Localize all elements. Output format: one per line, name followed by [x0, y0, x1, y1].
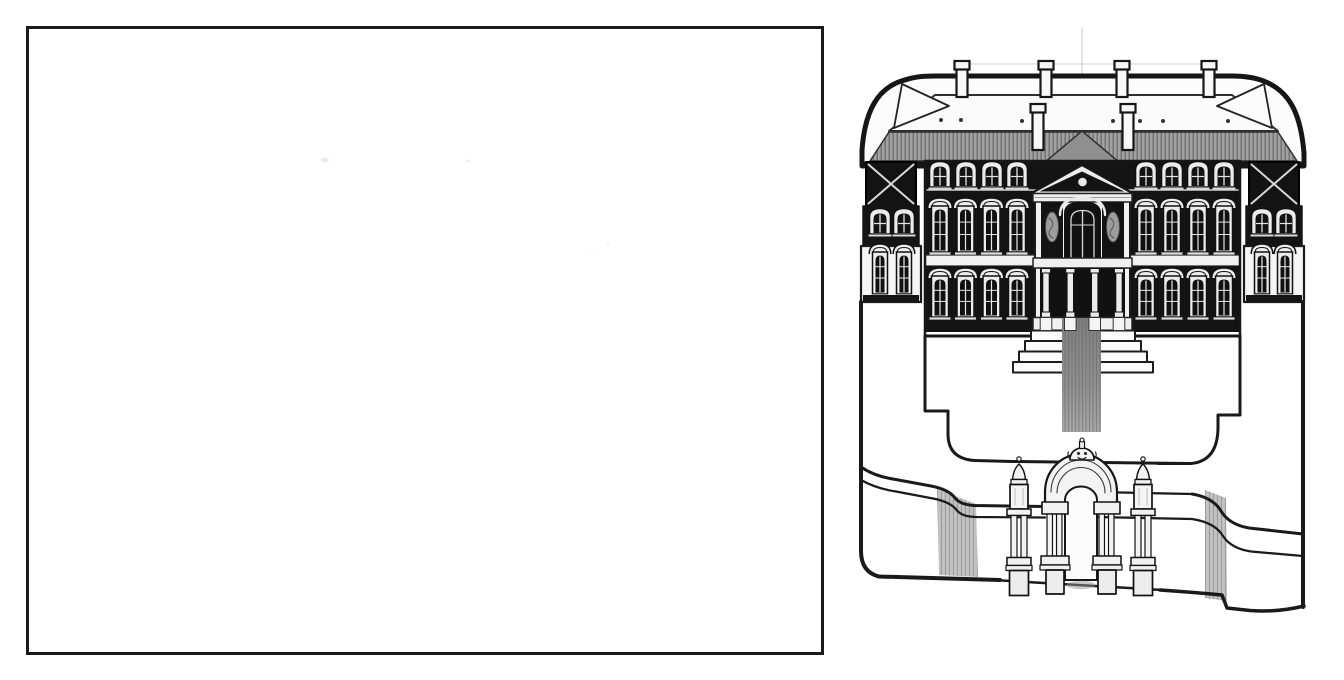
attic-dormer — [981, 162, 1004, 189]
upper-window — [1005, 198, 1029, 254]
gate-opening — [1065, 487, 1097, 581]
stair-step-1 — [1031, 331, 1135, 342]
lower-window — [1186, 268, 1210, 319]
lower-window — [953, 268, 977, 319]
gate-jamb-ogee-left — [1040, 565, 1070, 570]
upper-window — [1134, 198, 1158, 254]
lower-window — [1160, 268, 1184, 319]
attic-dormer — [955, 162, 978, 189]
blank-page-panel — [26, 26, 824, 655]
chimney-tall-3 — [1115, 61, 1130, 97]
portico-door-outline — [1071, 211, 1094, 259]
pavilion-right-attic-band — [1246, 206, 1302, 246]
upper-window — [953, 198, 977, 254]
upper-window — [928, 198, 952, 254]
loggia-pedestal — [1040, 318, 1052, 331]
pavilion-left-sill-band — [863, 295, 919, 302]
gate-pillar-outer-right — [1130, 457, 1156, 596]
niche-panel-right — [1102, 202, 1124, 258]
roof-hip-facet-left — [894, 84, 949, 128]
portico-backdrop — [1035, 195, 1130, 330]
gate-jamb-colonnette — [1109, 514, 1115, 558]
wall-bottom-mid — [1002, 581, 1162, 591]
pavilion-right-roof-diagonal — [1252, 165, 1297, 204]
roof-silhouette — [862, 76, 1304, 166]
gate-crest-dome — [1070, 448, 1094, 461]
medallion-right-figure — [1110, 218, 1114, 238]
pavilion-left-dormer — [893, 209, 916, 236]
medallion-left — [1046, 212, 1059, 242]
attic-dormer — [929, 162, 952, 189]
upper-window — [1186, 198, 1210, 254]
gate-crest-curl-right — [1094, 452, 1096, 459]
gate-crest-motif-dot — [1084, 452, 1087, 455]
gate-jamb-colonnette — [1057, 514, 1063, 558]
walkway-shaded-path — [1062, 318, 1101, 432]
pavilion-left-window — [869, 244, 891, 296]
wall-molding-upper-right — [1192, 494, 1303, 534]
pediment — [1030, 165, 1134, 194]
gate-jamb-colonnette — [1047, 514, 1053, 558]
loggia-column — [1090, 269, 1099, 318]
gate-jamb-pedestal-right — [1094, 502, 1120, 514]
medallion-left-figure — [1049, 218, 1053, 238]
pavilion-right-wall — [1244, 246, 1304, 302]
stair-step-3 — [1019, 352, 1147, 363]
gate-crest-motif-curve — [1078, 458, 1086, 460]
pavilion-right-roof-diagonal — [1252, 165, 1297, 204]
attic-band — [925, 161, 1240, 197]
loggia-opening — [1040, 268, 1125, 318]
gate-crest-curl-left — [1068, 452, 1070, 459]
gate-crest-ball — [1080, 438, 1084, 442]
upper-window — [1160, 198, 1184, 254]
gate-jamb-colonnette — [1099, 514, 1105, 558]
loggia-column — [1041, 269, 1050, 318]
niche-panel-left — [1041, 202, 1063, 258]
gate-jamb-ogee-right — [1092, 565, 1122, 570]
chimney-tall-4 — [1202, 61, 1217, 97]
facade-outline — [925, 161, 1240, 336]
wall-shade-strip-left — [937, 489, 978, 577]
medallion-right — [1107, 212, 1120, 242]
chimney-front-2 — [1121, 104, 1136, 150]
gate-pillar-outer-left — [1006, 457, 1032, 596]
stair-step-2 — [1025, 341, 1141, 352]
roof-upper-plane — [889, 95, 1278, 131]
gate-crest-knob — [1080, 442, 1085, 449]
wall-molding-lower-mid — [1097, 517, 1192, 519]
chimney-tall-2 — [1039, 61, 1054, 97]
wall-molding-lower-left — [861, 480, 1045, 518]
pavilion-right-dormer — [1251, 209, 1274, 236]
pediment-tympanum — [1040, 172, 1125, 192]
gate-jamb-plinth-right — [1093, 556, 1121, 565]
attic-dormer — [1006, 162, 1029, 189]
gate-jamb-plinth-left — [1041, 556, 1069, 565]
wall-inner-contour-left — [925, 336, 1012, 462]
stair-step-4 — [1013, 362, 1153, 373]
attic-dormer — [1213, 162, 1236, 189]
portico-entablature — [1033, 194, 1132, 203]
pavilion-left-dormer — [869, 209, 892, 236]
wall-molding-upper-mid — [1097, 492, 1192, 494]
gate-arch-band — [1045, 454, 1117, 503]
portico-arch-opening — [1064, 202, 1101, 259]
pavilion-left-wall — [861, 246, 921, 302]
lower-window — [1212, 268, 1236, 319]
loggia-column — [1114, 269, 1123, 318]
roof-snowguard-dots — [939, 118, 1230, 123]
gate-archivolt-2 — [1057, 468, 1105, 493]
gate-jamb-base-left — [1046, 570, 1064, 594]
wall-outer-edge-left — [861, 302, 1000, 580]
gate-shadow — [1067, 581, 1096, 589]
chimney-front-1 — [1031, 104, 1046, 150]
upper-window — [979, 198, 1003, 254]
pavilion-right-dormer — [1275, 209, 1298, 236]
pavilion-right-window — [1251, 244, 1273, 296]
stylobate-band — [1033, 318, 1132, 331]
pavilion-right-pyramid-roof — [1249, 162, 1299, 206]
lower-window-band — [925, 266, 1240, 332]
chimney-tall-1 — [955, 61, 970, 97]
loggia-pedestal — [1113, 318, 1125, 331]
upper-window-band — [925, 197, 1240, 257]
pavilion-right-window — [1274, 244, 1296, 296]
balcony-band — [1033, 258, 1132, 268]
upper-window — [1212, 198, 1236, 254]
pavilion-left-roof-diagonal — [869, 165, 914, 204]
wall-bottom-right — [1160, 590, 1304, 611]
gate-jamb-base-right — [1098, 570, 1116, 594]
portico-archivolt — [1060, 198, 1105, 215]
lower-window — [1134, 268, 1158, 319]
walkway-hatch — [1062, 318, 1101, 432]
wall-coping-line — [1012, 462, 1190, 464]
pavilion-left-pyramid-roof — [866, 162, 916, 206]
gate-jamb-pedestal-left — [1042, 502, 1068, 514]
loggia-pedestal — [1089, 318, 1101, 331]
lower-window — [928, 268, 952, 319]
pavilion-left-attic-band — [863, 206, 919, 246]
wall-shade-strip-right — [1205, 490, 1227, 601]
roof-mansard-shaded — [870, 132, 1297, 161]
lower-window — [979, 268, 1003, 319]
gate-archivolt-1 — [1051, 460, 1111, 492]
pediment-oculus — [1078, 178, 1087, 187]
loggia-column — [1066, 269, 1075, 318]
wall-inner-contour-right — [1158, 336, 1240, 464]
pavilion-left-roof-diagonal — [869, 165, 914, 204]
floor-string-course — [925, 255, 1240, 266]
gate-crest-motif-dot — [1077, 452, 1080, 455]
roof-central-hip — [1044, 131, 1120, 163]
pavilion-left-window — [893, 244, 915, 296]
attic-dormer — [1187, 162, 1210, 189]
wall-molding-lower-right — [1192, 519, 1303, 556]
pavilion-right-sill-band — [1246, 295, 1302, 302]
lower-window — [1005, 268, 1029, 319]
roof-hip-facet-right — [1217, 84, 1272, 128]
wall-molding-upper-left — [861, 467, 1045, 507]
loggia-pedestal — [1065, 318, 1077, 331]
attic-dormer — [1161, 162, 1184, 189]
attic-dormer — [1135, 162, 1158, 189]
